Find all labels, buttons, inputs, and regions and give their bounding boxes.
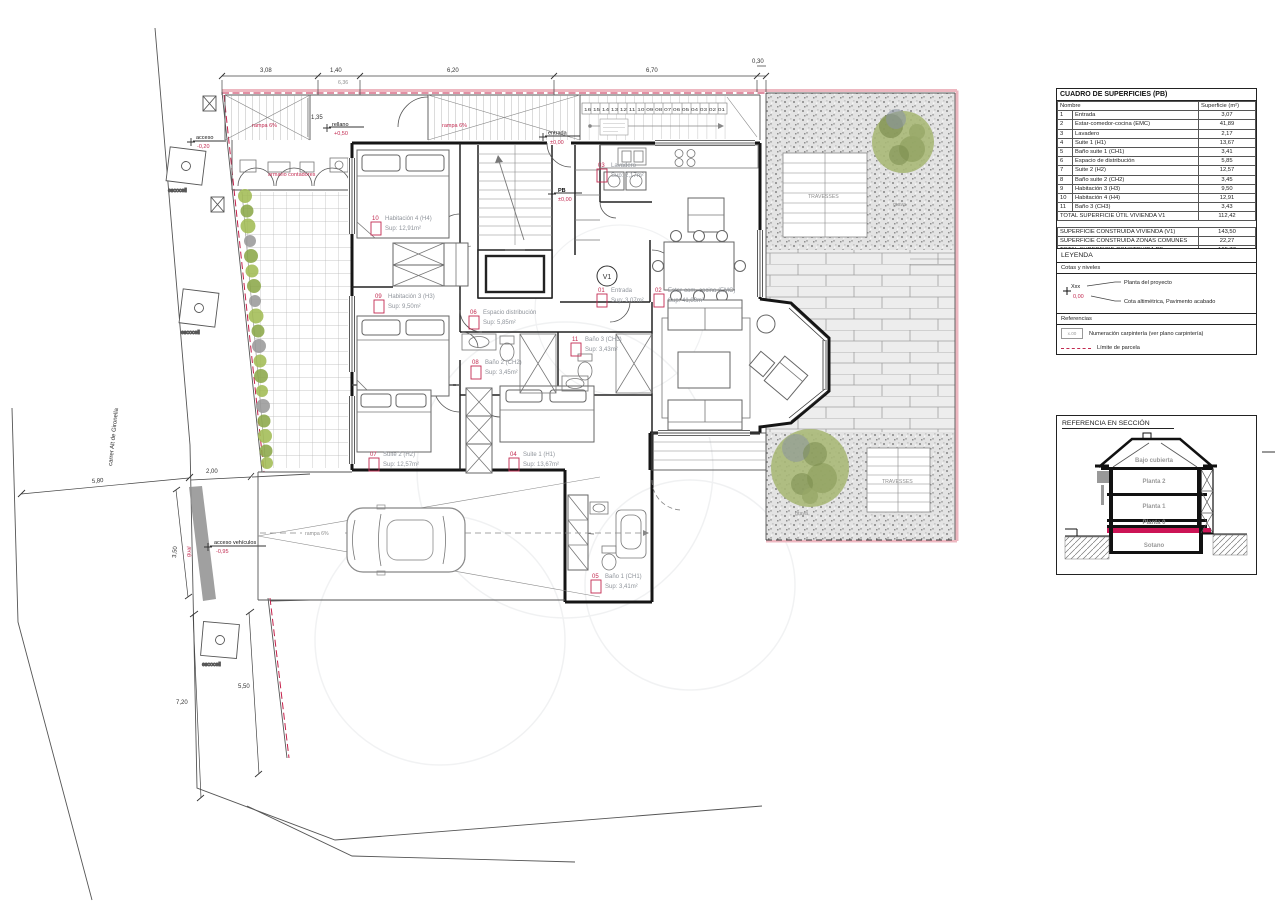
- svg-text:Baño 3 (CH3): Baño 3 (CH3): [585, 337, 622, 343]
- dim-3: 6,20: [447, 68, 459, 74]
- svg-text:Espacio distribución: Espacio distribución: [483, 310, 536, 316]
- table-row: 3Lavadero2,17: [1058, 129, 1256, 138]
- tree-pit-3: escocell: [201, 621, 240, 668]
- legend-group-refs: Referencias: [1057, 313, 1256, 325]
- svg-text:Sup: 12,91m²: Sup: 12,91m²: [385, 226, 421, 232]
- legend-level-symbols: Xxx 0,00 Planta del proyecto Cota altimé…: [1057, 274, 1254, 308]
- legend-item-limit: Límite de parcela: [1097, 345, 1140, 351]
- svg-text:PB: PB: [558, 188, 566, 194]
- section-reference-panel: REFERENCIA EN SECCIÓN Bajo cubierta Plan…: [1056, 415, 1257, 575]
- svg-text:Suite 1 (H1): Suite 1 (H1): [523, 452, 555, 458]
- tree-pit-3-label: escocell: [202, 662, 221, 668]
- svg-text:+0,50: +0,50: [334, 131, 348, 137]
- tree-pit-1: escocell: [166, 147, 206, 194]
- legend-group-levels: Cotas y niveles: [1057, 263, 1256, 274]
- garage: rampa 6%: [258, 472, 649, 600]
- svg-text:rellano: rellano: [332, 122, 349, 128]
- surface-table-title: CUADRO DE SUPERFICIES (PB): [1057, 89, 1256, 101]
- svg-text:Sup: 12,57m²: Sup: 12,57m²: [383, 462, 419, 468]
- svg-text:02: 02: [655, 288, 662, 294]
- bathroom-ch1: [590, 502, 646, 570]
- legend-panel: LEYENDA Cotas y niveles Xxx 0,00 Planta …: [1056, 248, 1257, 355]
- svg-text:Suite 2 (H2): Suite 2 (H2): [383, 452, 415, 458]
- svg-text:Entrada: Entrada: [611, 288, 633, 294]
- garage-ramp-label: rampa 6%: [305, 531, 329, 537]
- legend-item-ref: Numeración carpintería (ver plano carpin…: [1089, 331, 1203, 337]
- svg-text:Sup: 3,45m²: Sup: 3,45m²: [485, 370, 518, 376]
- surface-table-panel: CUADRO DE SUPERFICIES (PB) Nombre Superf…: [1056, 88, 1257, 257]
- floor-label-planta0: Planta 0: [1142, 520, 1166, 526]
- svg-text:Estar-com.-cocina (EMC): Estar-com.-cocina (EMC): [668, 288, 735, 294]
- tree-pit-2: escocell: [179, 289, 219, 336]
- svg-text:Sup: 13,67m²: Sup: 13,67m²: [523, 462, 559, 468]
- svg-text:Baño 2 (CH2): Baño 2 (CH2): [485, 360, 522, 366]
- dim-patio: 2,00: [206, 469, 218, 475]
- legend-sym-level: 0,00: [1073, 294, 1084, 300]
- dim-landing: 1,35: [311, 115, 323, 121]
- gual-label: gual: [186, 546, 193, 557]
- svg-text:acceso vehículos: acceso vehículos: [214, 540, 256, 546]
- gual-kerb: gual: [186, 486, 216, 601]
- carpentry-ref-box: x.00: [1061, 328, 1083, 339]
- stair-core: [478, 145, 552, 298]
- legend-item-level: Cota altimétrica, Pavimento acabado: [1124, 299, 1215, 305]
- patio: [238, 189, 352, 469]
- dim-street-lower: 7,20: [176, 700, 188, 706]
- table-row: 11Baño 3 (CH3)3,43: [1058, 203, 1256, 212]
- svg-text:01: 01: [598, 288, 605, 294]
- svg-text:acceso: acceso: [196, 135, 213, 141]
- dwelling-tag: V1: [597, 266, 617, 286]
- svg-text:Sup: 2,17m²: Sup: 2,17m²: [611, 173, 644, 179]
- col-header-name: Nombre: [1058, 102, 1199, 111]
- ramp2-label: rampa 6%: [442, 123, 467, 129]
- room-label-suite1: 04 Suite 1 (H1) Sup: 13,67m²: [509, 452, 559, 471]
- svg-text:-0,95: -0,95: [216, 549, 229, 555]
- svg-text:±0,00: ±0,00: [558, 197, 572, 203]
- car: [347, 505, 465, 575]
- dim-1: 3,08: [260, 68, 272, 74]
- bed-suite1: [500, 386, 594, 442]
- svg-text:Baño 1 (CH1): Baño 1 (CH1): [605, 574, 642, 580]
- svg-text:11: 11: [572, 337, 579, 343]
- tree-pit-2-label: escocell: [181, 330, 200, 336]
- bed-suite2: [357, 390, 431, 452]
- room-label-bano2: 08 Baño 2 (CH2) Sup: 3,45m²: [471, 360, 522, 379]
- room-label-bano3: 11 Baño 3 (CH3) Sup: 3,43m²: [571, 337, 622, 356]
- svg-text:Lavadero: Lavadero: [611, 163, 637, 169]
- deck-bottom-label: TRAVESSES: [882, 479, 913, 485]
- svg-text:Habitación 3 (H3): Habitación 3 (H3): [388, 294, 435, 300]
- room-label-suite2: 07 Suite 2 (H2) Sup: 12,57m²: [369, 452, 419, 471]
- legend-limit-row: Límite de parcela: [1057, 342, 1256, 354]
- gravel-bottom-label: grava: [795, 511, 808, 517]
- legend-sym-plan: Xxx: [1071, 284, 1080, 290]
- table-row: 6Espacio de distribución5,85: [1058, 157, 1256, 166]
- meter-cabinet-label: armario contadores: [268, 172, 316, 178]
- svg-text:05: 05: [592, 574, 599, 580]
- svg-text:entrada: entrada: [548, 131, 568, 137]
- tree-pit-1-label: escocell: [168, 188, 187, 194]
- col-header-area: Superficie (m²): [1199, 102, 1256, 111]
- svg-text:Sup: 5,85m²: Sup: 5,85m²: [483, 320, 516, 326]
- parcel-limit-dash-icon: [1061, 348, 1091, 349]
- legend-title: LEYENDA: [1057, 249, 1256, 263]
- table-row: 9Habitación 3 (H3)9,50: [1058, 184, 1256, 193]
- stair-tread-numbers: 16 15 14 13 12 11 10 09 08 07 06 05 04 0…: [584, 107, 726, 112]
- table-row: 10Habitación 4 (H4)12,91: [1058, 193, 1256, 202]
- room-label-h3: 09 Habitación 3 (H3) Sup: 9,50m²: [374, 294, 435, 313]
- legend-item-plan: Planta del proyecto: [1124, 280, 1172, 286]
- svg-text:04: 04: [510, 452, 517, 458]
- table-total-row: TOTAL SUPERFICIE ÚTIL VIVIENDA V1112,42: [1058, 212, 1256, 221]
- dim-street-width: 5,80: [92, 478, 105, 485]
- room-label-distribucion: 06 Espacio distribución Sup: 5,85m²: [469, 310, 536, 329]
- section-title: REFERENCIA EN SECCIÓN: [1057, 416, 1256, 428]
- svg-text:Sup: 41,89m²: Sup: 41,89m²: [668, 298, 704, 304]
- tree-bottom: [771, 429, 849, 507]
- dim-offset: 6,36: [338, 80, 348, 86]
- svg-text:03: 03: [598, 163, 605, 169]
- svg-text:-0,20: -0,20: [197, 144, 210, 150]
- room-label-bano1: 05 Baño 1 (CH1) Sup: 3,41m²: [591, 574, 642, 593]
- table-spacer: [1058, 221, 1256, 228]
- level-pb: PB ±0,00: [548, 188, 582, 203]
- svg-text:Sup: 3,41m²: Sup: 3,41m²: [605, 584, 638, 590]
- post-icon: [203, 96, 224, 212]
- legend-ref-row: x.00 Numeración carpintería (ver plano c…: [1057, 325, 1256, 342]
- table-row: 7Suite 2 (H2)12,57: [1058, 166, 1256, 175]
- table-row: 1Entrada3,07: [1058, 111, 1256, 120]
- table-row: 2Estar-comedor-cocina (EMC)41,89: [1058, 120, 1256, 129]
- svg-text:Sup: 9,50m²: Sup: 9,50m²: [388, 304, 421, 310]
- svg-text:Sup: 3,43m²: Sup: 3,43m²: [585, 347, 618, 353]
- table-built-row: SUPERFICIE CONSTRUIDA VIVIENDA (V1)143,5…: [1058, 228, 1256, 237]
- street-name: carrer Alt de Gironella: [108, 407, 120, 466]
- level-acceso: acceso -0,20: [187, 135, 226, 150]
- dim-gual: 3,50: [172, 545, 179, 558]
- gravel-top-label: grava: [893, 202, 906, 208]
- ramp1-label: rampa 6%: [252, 123, 277, 129]
- kitchen: [575, 145, 758, 240]
- svg-text:07: 07: [370, 452, 377, 458]
- svg-text:Sup: 3,07m²: Sup: 3,07m²: [611, 298, 644, 304]
- table-row: 8Baño suite 2 (CH2)3,45: [1058, 175, 1256, 184]
- floor-label-planta1: Planta 1: [1142, 504, 1166, 510]
- svg-text:V1: V1: [603, 274, 612, 281]
- svg-text:10: 10: [372, 216, 379, 222]
- svg-text:08: 08: [472, 360, 479, 366]
- building-section-drawing: Bajo cubierta Planta 2 Planta 1 Planta 0…: [1057, 429, 1254, 567]
- dim-2: 1,40: [330, 68, 342, 74]
- floor-label-bajo-cubierta: Bajo cubierta: [1135, 458, 1174, 464]
- floor-label-planta2: Planta 2: [1142, 479, 1166, 485]
- floor-plan-sheet: carrer Alt de Gironella gual escocell es…: [0, 0, 1280, 903]
- room-label-entrada: 01 Entrada Sup: 3,07m²: [597, 288, 644, 307]
- surface-table-grid: Nombre Superficie (m²) 1Entrada3,07 2Est…: [1057, 101, 1256, 256]
- svg-text:Habitación 4 (H4): Habitación 4 (H4): [385, 216, 432, 222]
- level-rellano: rellano +0,50: [323, 122, 364, 137]
- access-corridor: 16 15 14 13 12 11 10 09 08 07 06 05 04 0…: [225, 95, 760, 140]
- table-row: 5Baño suite 1 (CH1)3,41: [1058, 147, 1256, 156]
- table-row: 4Suite 1 (H1)13,67: [1058, 138, 1256, 147]
- deck-bottom: TRAVESSES: [867, 448, 930, 512]
- meter-cabinet-strip: armario contadores: [232, 140, 352, 190]
- deck-top: TRAVESSES: [783, 153, 867, 237]
- svg-text:06: 06: [470, 310, 477, 316]
- dim-4: 6,70: [646, 68, 658, 74]
- svg-text:09: 09: [375, 294, 382, 300]
- deck-top-label: TRAVESSES: [808, 194, 839, 200]
- dim-5: 0,30: [752, 59, 764, 65]
- level-vehiculos: acceso vehículos -0,95: [204, 540, 266, 555]
- dim-kerb-lower: 5,50: [238, 684, 250, 690]
- table-built-row: SUPERFICIE CONSTRUIDA ZONAS COMUNES22,27: [1058, 237, 1256, 246]
- bed-h3: [357, 316, 449, 396]
- floor-label-sotano: Sotano: [1144, 543, 1165, 549]
